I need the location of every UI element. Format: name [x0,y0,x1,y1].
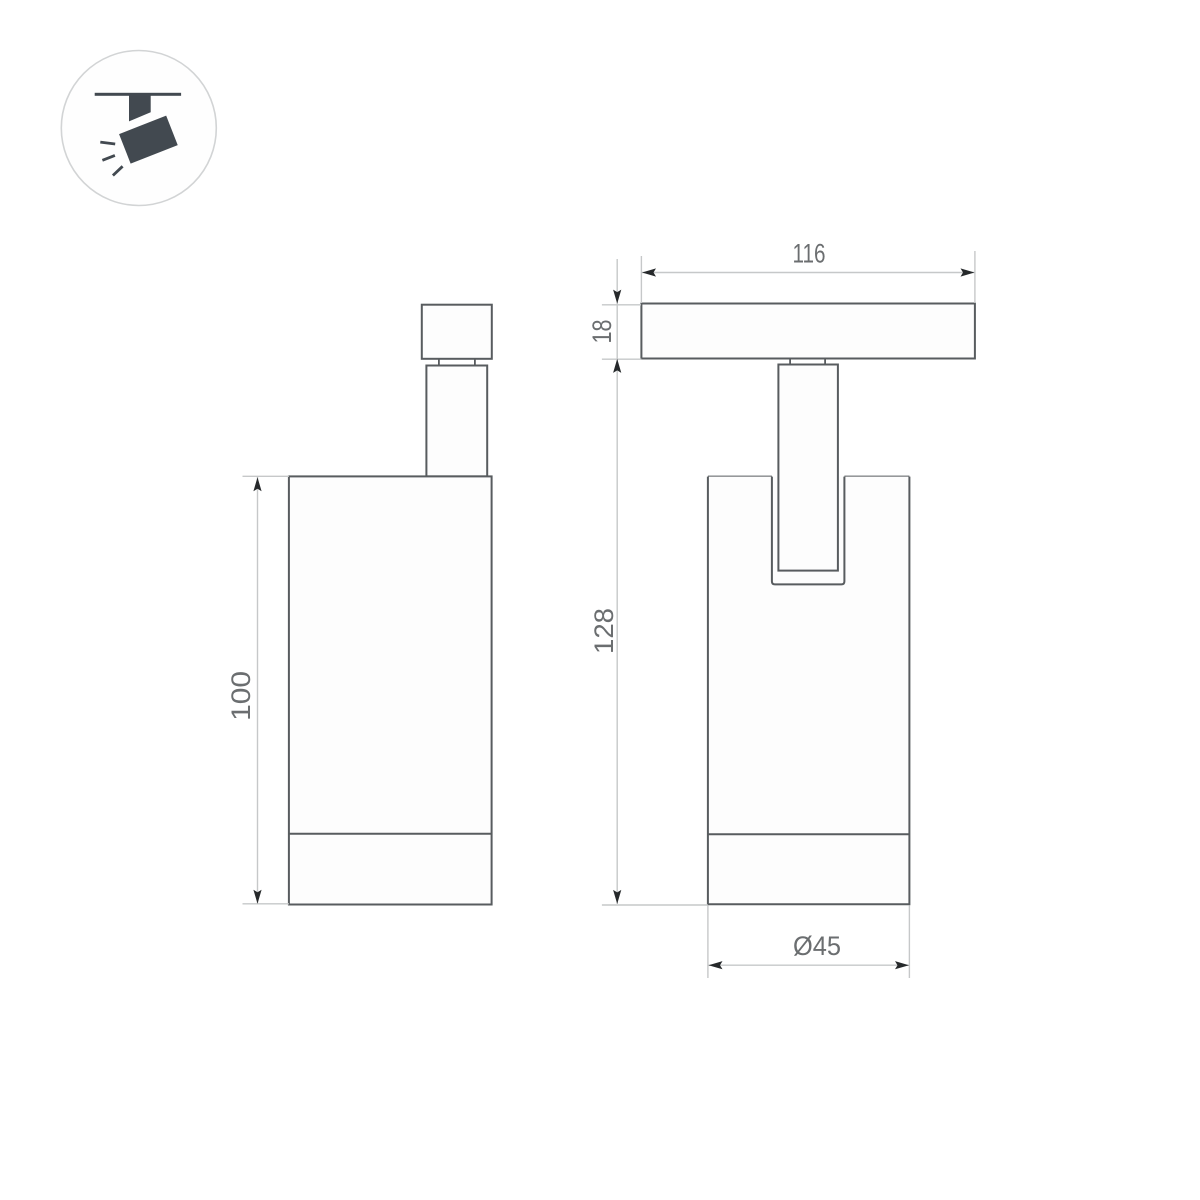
svg-text:116: 116 [793,239,826,269]
svg-text:100: 100 [226,671,256,721]
svg-text:128: 128 [589,608,619,654]
svg-text:Ø45: Ø45 [793,931,841,961]
svg-text:18: 18 [587,320,617,344]
